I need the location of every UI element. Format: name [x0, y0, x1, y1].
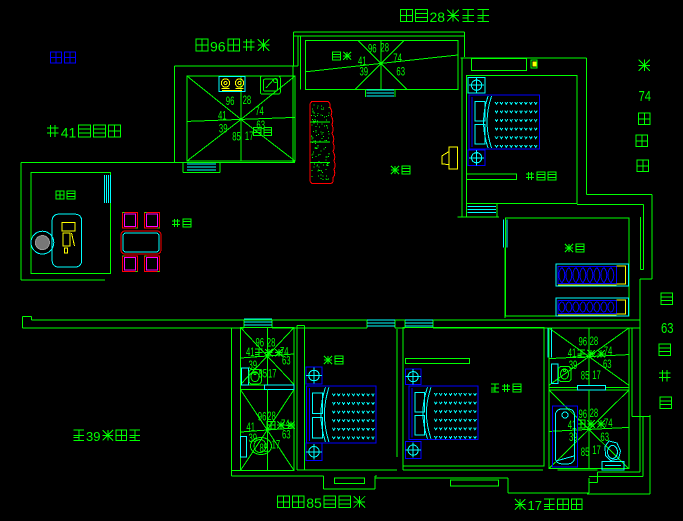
svg-text:96: 96 — [368, 42, 377, 56]
svg-text:63: 63 — [282, 430, 291, 442]
svg-text:96: 96 — [579, 336, 588, 348]
svg-text:28: 28 — [590, 408, 599, 420]
svg-text:41: 41 — [246, 347, 255, 359]
svg-text:74: 74 — [604, 418, 613, 430]
svg-text:96: 96 — [226, 94, 235, 108]
svg-text:41: 41 — [568, 420, 577, 432]
svg-text:17: 17 — [272, 439, 281, 451]
svg-text:63: 63 — [603, 359, 612, 371]
svg-text:74: 74 — [639, 88, 652, 105]
svg-text:39: 39 — [569, 432, 578, 444]
svg-text:85: 85 — [581, 447, 590, 459]
svg-text:17: 17 — [268, 369, 277, 381]
svg-text:63: 63 — [661, 320, 674, 337]
svg-text:63: 63 — [396, 65, 405, 79]
svg-text:28: 28 — [243, 93, 252, 107]
svg-text:74: 74 — [604, 346, 613, 358]
svg-text:39: 39 — [249, 433, 258, 445]
svg-text:28: 28 — [267, 338, 276, 350]
svg-text:96: 96 — [210, 38, 226, 54]
svg-text:41: 41 — [568, 348, 577, 360]
svg-text:96: 96 — [256, 338, 265, 350]
svg-text:74: 74 — [255, 104, 264, 118]
svg-text:85: 85 — [306, 495, 322, 511]
svg-text:39: 39 — [219, 122, 228, 136]
svg-text:41: 41 — [61, 124, 77, 140]
svg-text:63: 63 — [282, 355, 291, 367]
svg-text:85: 85 — [259, 369, 268, 381]
svg-text:96: 96 — [579, 409, 588, 421]
svg-text:74: 74 — [393, 51, 402, 65]
svg-text:28: 28 — [430, 9, 446, 25]
svg-text:41: 41 — [218, 108, 227, 122]
svg-text:28: 28 — [590, 336, 599, 348]
svg-text:28: 28 — [380, 41, 389, 55]
svg-text:96: 96 — [258, 412, 267, 424]
svg-text:17: 17 — [592, 445, 601, 457]
svg-text:17: 17 — [528, 498, 542, 513]
svg-text:39: 39 — [86, 429, 100, 444]
svg-text:39: 39 — [360, 65, 369, 79]
svg-text:39: 39 — [569, 360, 578, 372]
svg-text:85: 85 — [581, 371, 590, 383]
svg-text:85: 85 — [232, 130, 241, 144]
svg-text:17: 17 — [245, 129, 254, 143]
svg-text:17: 17 — [592, 370, 601, 382]
